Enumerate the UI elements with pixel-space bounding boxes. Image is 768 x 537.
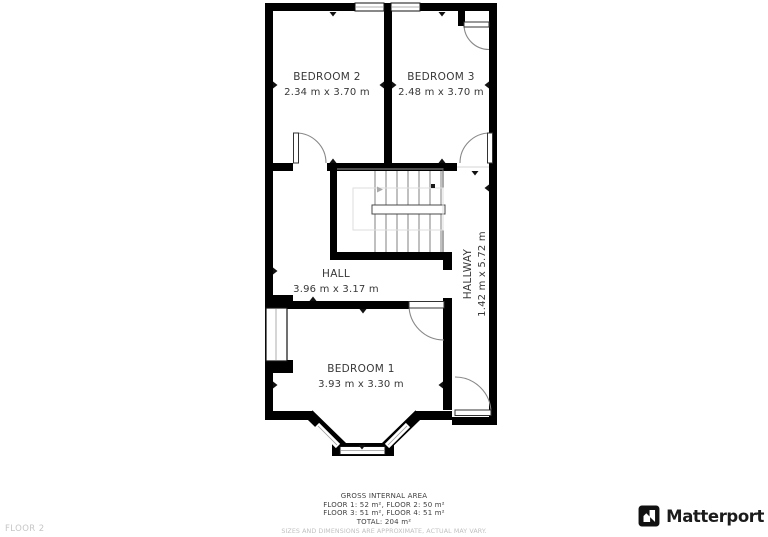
staircase (337, 168, 445, 252)
gross-internal-area-title: GROSS INTERNAL AREA (0, 492, 768, 501)
hall-dims: 3.96 m x 3.17 m (293, 284, 379, 295)
floor-indicator: FLOOR 2 (5, 524, 45, 534)
bedroom1-left-window (266, 308, 287, 361)
floorplan: BEDROOM 2 2.34 m x 3.70 m BEDROOM 3 2.48… (0, 0, 768, 537)
bedroom2-label: BEDROOM 2 (293, 71, 361, 83)
disclaimer-text: SIZES AND DIMENSIONS ARE APPROXIMATE, AC… (0, 528, 768, 537)
hallway-door (455, 377, 491, 416)
bedroom2-top-window (355, 3, 384, 11)
bedroom2-door (294, 133, 327, 163)
floorplan-canvas: BEDROOM 2 2.34 m x 3.70 m BEDROOM 3 2.48… (0, 0, 768, 537)
bedroom3-closet-door (464, 22, 489, 50)
bedroom2-dims: 2.34 m x 3.70 m (284, 87, 370, 98)
hall-label: HALL (322, 268, 350, 280)
hallway-label: HALLWAY (462, 248, 474, 299)
stair-start-marker (431, 184, 435, 188)
bedroom3-dims: 2.48 m x 3.70 m (398, 87, 484, 98)
stair-direction-arrow (377, 187, 383, 193)
bedroom1-door (409, 302, 444, 341)
bedroom3-label: BEDROOM 3 (407, 71, 475, 83)
matterport-wordmark: Matterport (666, 507, 764, 526)
bedroom3-top-window (391, 3, 420, 11)
matterport-icon (638, 505, 660, 527)
bedroom1-label: BEDROOM 1 (327, 363, 395, 375)
hallway-dims: 1.42 m x 5.72 m (477, 231, 488, 317)
bedroom1-dims: 3.93 m x 3.30 m (318, 379, 404, 390)
bedroom3-door (460, 133, 493, 163)
stair-landing (372, 205, 445, 214)
matterport-logo: Matterport (638, 505, 764, 527)
